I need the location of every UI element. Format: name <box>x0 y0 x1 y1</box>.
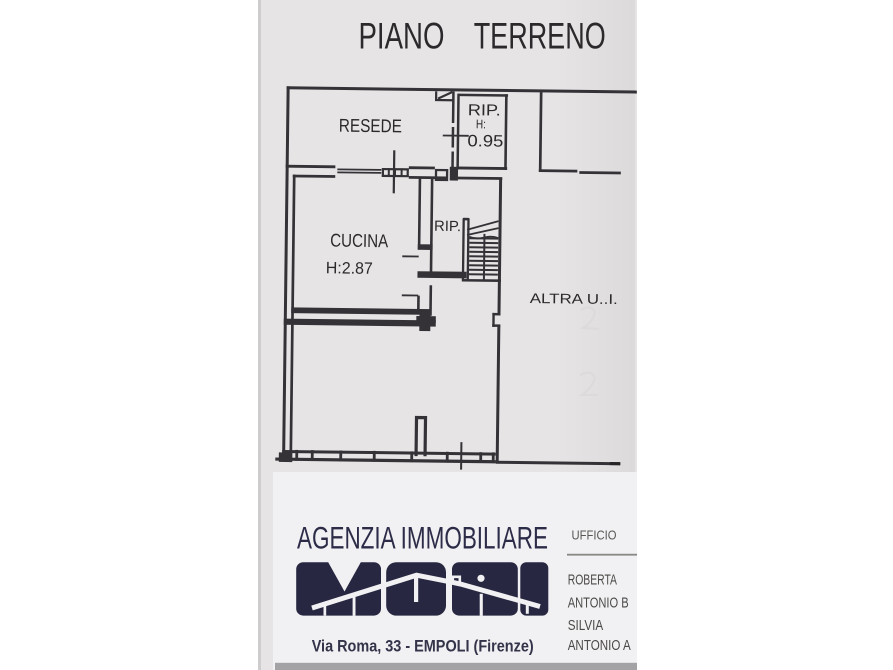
svg-text:ANTONIO A: ANTONIO A <box>568 638 631 654</box>
svg-text:RESEDE: RESEDE <box>339 115 402 137</box>
svg-text:RIP.: RIP. <box>434 219 461 235</box>
svg-text:H:2.87: H:2.87 <box>326 259 373 278</box>
svg-text:H:: H: <box>476 117 486 131</box>
svg-text:ROBERTA: ROBERTA <box>568 573 618 589</box>
svg-text:SILVIA: SILVIA <box>568 618 604 634</box>
svg-text:TERRENO: TERRENO <box>474 15 606 57</box>
svg-text:Via Roma, 33 - EMPOLI (Firenz: Via Roma, 33 - EMPOLI (Firenze) <box>312 637 534 656</box>
svg-text:UFFICIO: UFFICIO <box>572 529 617 543</box>
svg-text:0.95: 0.95 <box>467 132 503 150</box>
svg-text:ALTRA U..I.: ALTRA U..I. <box>530 290 618 307</box>
svg-text:ANTONIO B: ANTONIO B <box>568 596 629 612</box>
svg-text:CUCINA: CUCINA <box>330 230 389 252</box>
svg-text:PIANO: PIANO <box>359 15 445 57</box>
svg-text:AGENZIA IMMOBILIARE: AGENZIA IMMOBILIARE <box>297 519 548 555</box>
